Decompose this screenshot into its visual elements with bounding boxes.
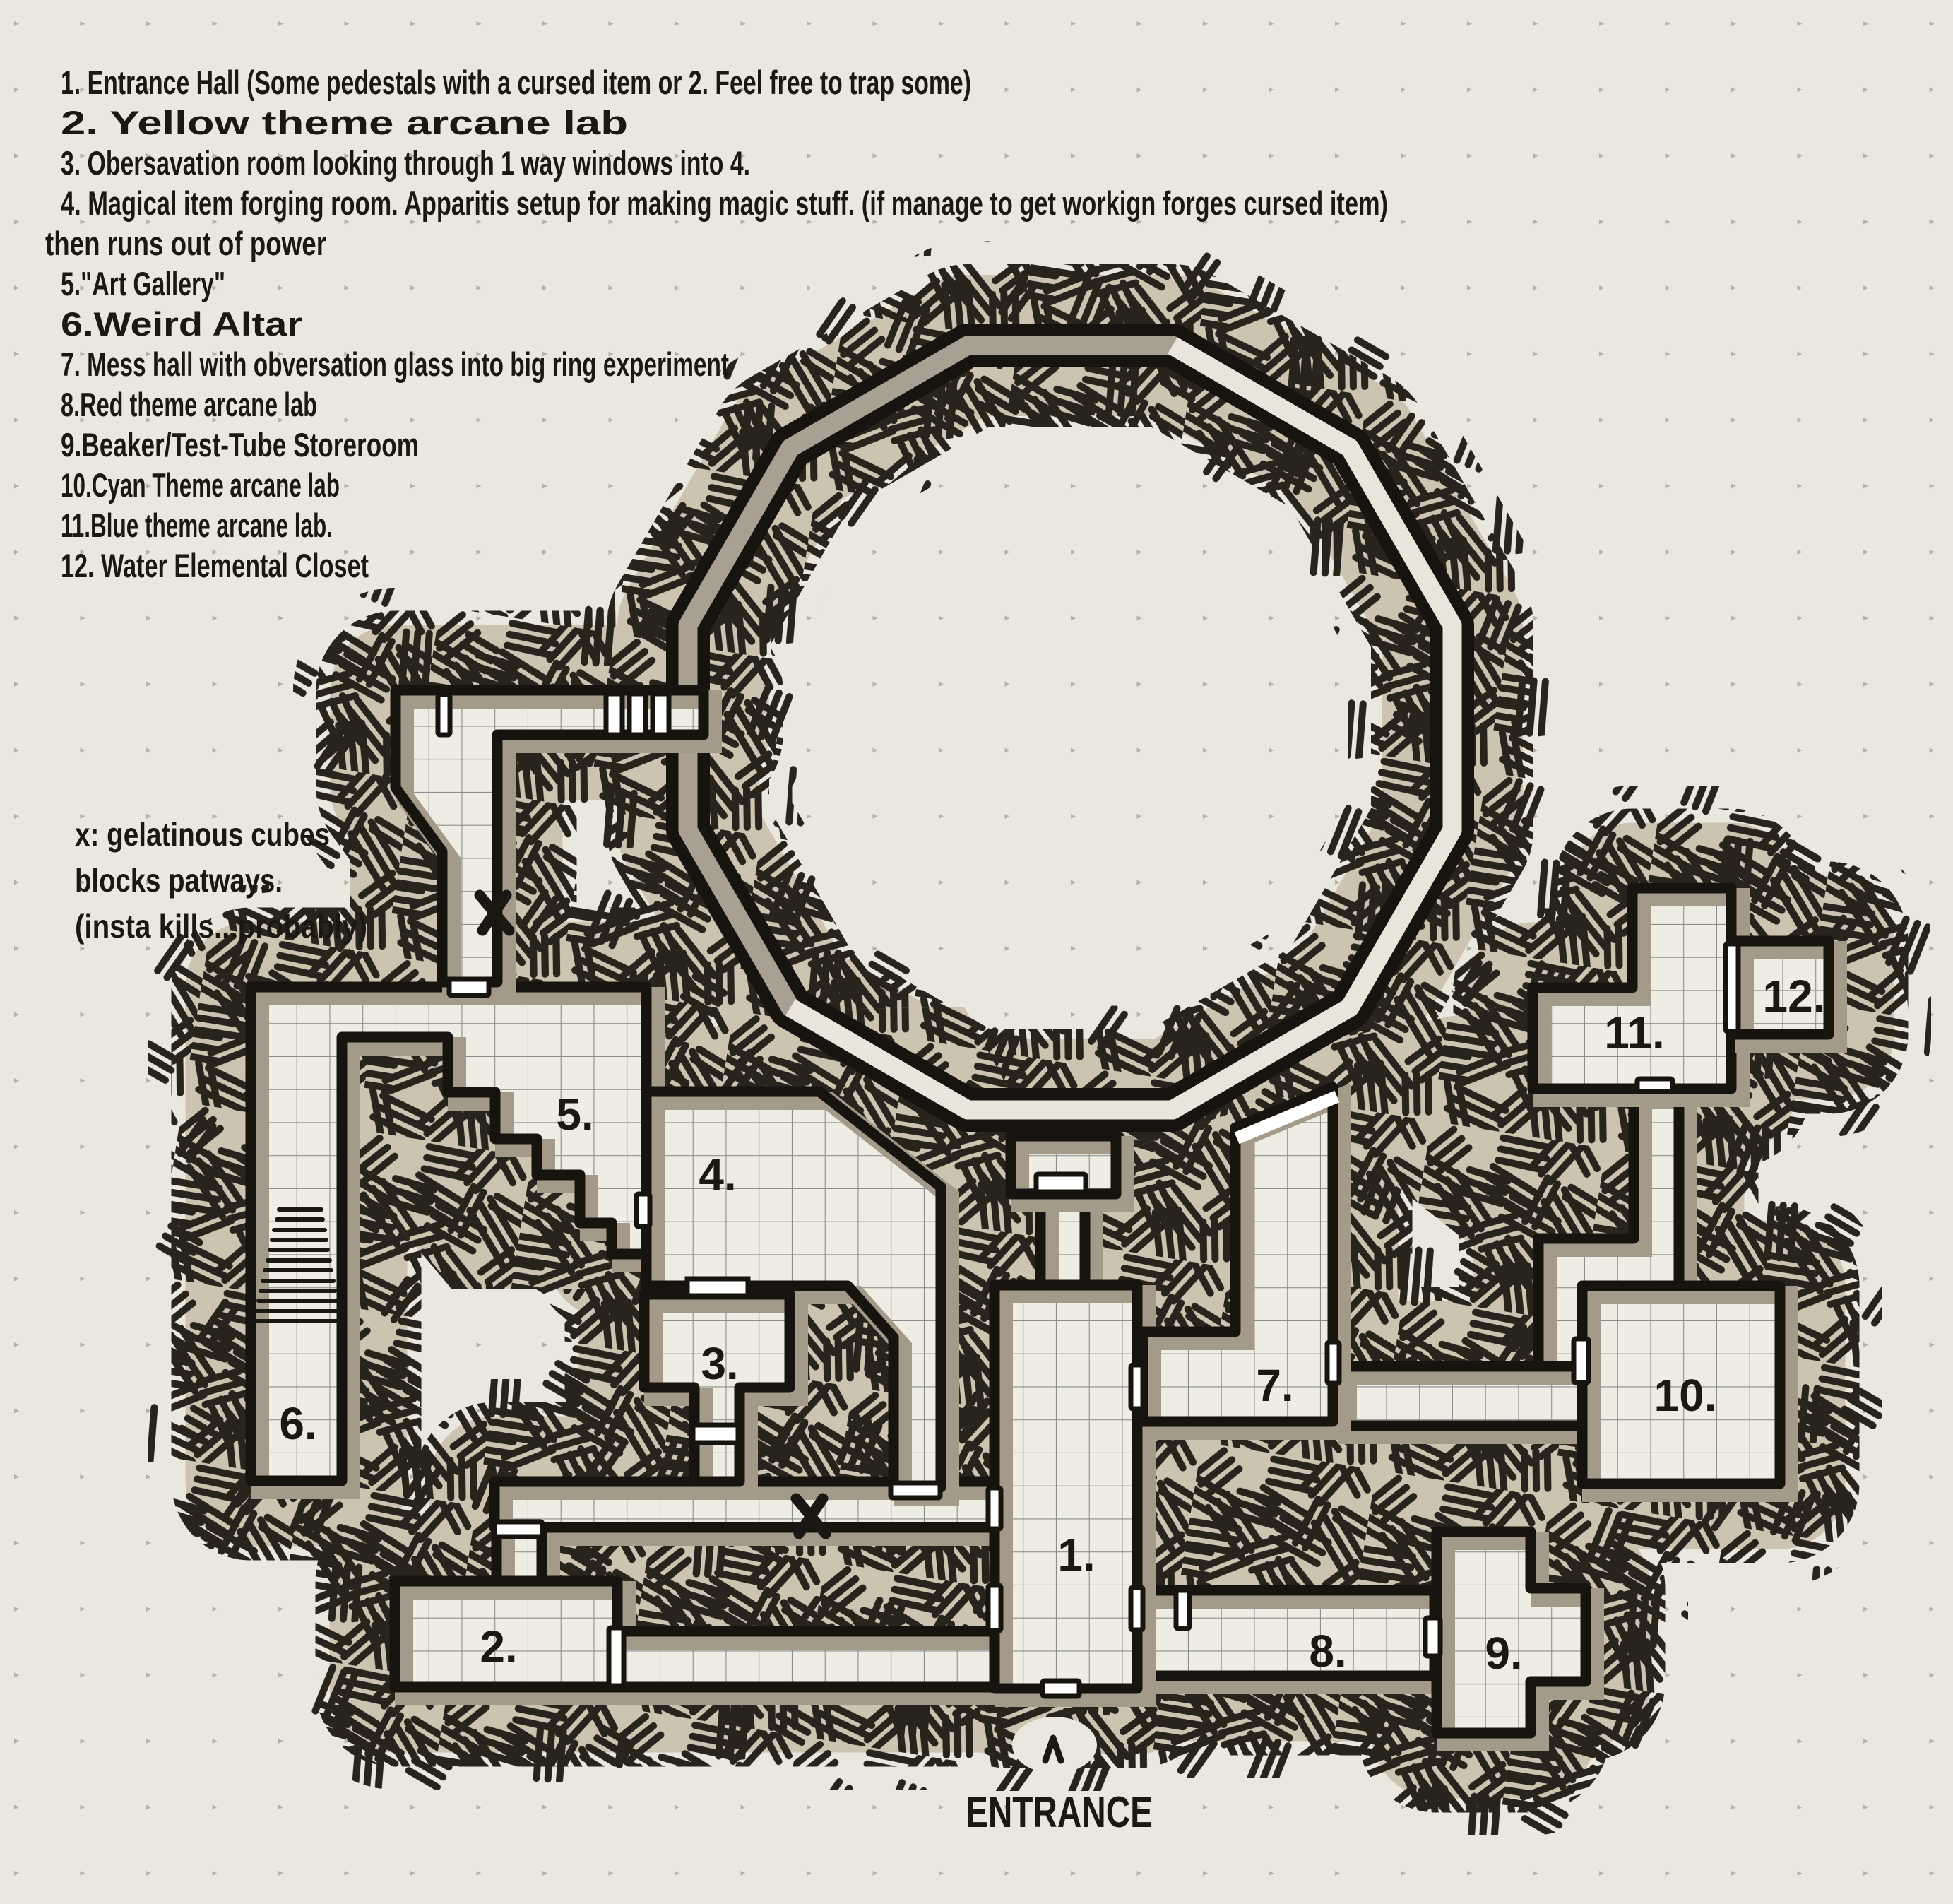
svg-text:9.: 9. <box>1485 1628 1522 1679</box>
svg-text:4.: 4. <box>699 1149 736 1200</box>
svg-text:3.: 3. <box>701 1338 738 1389</box>
svg-text:10.: 10. <box>1654 1370 1717 1421</box>
svg-text:12.: 12. <box>1763 971 1826 1022</box>
svg-text:11.: 11. <box>1604 1007 1664 1058</box>
svg-text:5."Art Gallery": 5."Art Gallery" <box>61 265 225 302</box>
svg-text:2. Yellow theme arcane lab: 2. Yellow theme arcane lab <box>61 104 628 141</box>
svg-text:5.: 5. <box>556 1089 593 1140</box>
svg-text:4. Magical item forging room.: 4. Magical item forging room. Apparitis … <box>61 184 1388 222</box>
svg-text:6.Weird Altar: 6.Weird Altar <box>61 305 302 343</box>
svg-text:8.Red theme arcane lab: 8.Red theme arcane lab <box>61 386 317 423</box>
svg-text:(insta kills...probably): (insta kills...probably) <box>75 908 367 945</box>
svg-text:6.: 6. <box>279 1398 316 1449</box>
svg-text:2.: 2. <box>480 1621 517 1672</box>
svg-text:10.Cyan Theme arcane lab: 10.Cyan Theme arcane lab <box>61 466 340 504</box>
svg-text:12. Water Elemental Closet: 12. Water Elemental Closet <box>61 547 369 584</box>
svg-text:x: gelatinous cubes: x: gelatinous cubes <box>75 816 330 853</box>
svg-text:then runs out of power: then runs out of power <box>45 225 326 262</box>
svg-text:11.Blue theme arcane lab.: 11.Blue theme arcane lab. <box>61 507 333 544</box>
svg-text:blocks patways.: blocks patways. <box>75 862 283 899</box>
svg-text:7.: 7. <box>1256 1360 1293 1411</box>
svg-text:7. Mess hall with obversation: 7. Mess hall with obversation glass into… <box>61 345 729 383</box>
svg-text:8.: 8. <box>1309 1626 1346 1677</box>
svg-text:1.: 1. <box>1057 1530 1095 1580</box>
svg-text:9.Beaker/Test-Tube Storeroom: 9.Beaker/Test-Tube Storeroom <box>61 426 419 463</box>
svg-text:1. Entrance Hall (Some pedesta: 1. Entrance Hall (Some pedestals with a … <box>61 64 971 101</box>
svg-text:3. Obersavation room looking t: 3. Obersavation room looking through 1 w… <box>61 144 750 182</box>
svg-text:ENTRANCE: ENTRANCE <box>966 1788 1153 1837</box>
